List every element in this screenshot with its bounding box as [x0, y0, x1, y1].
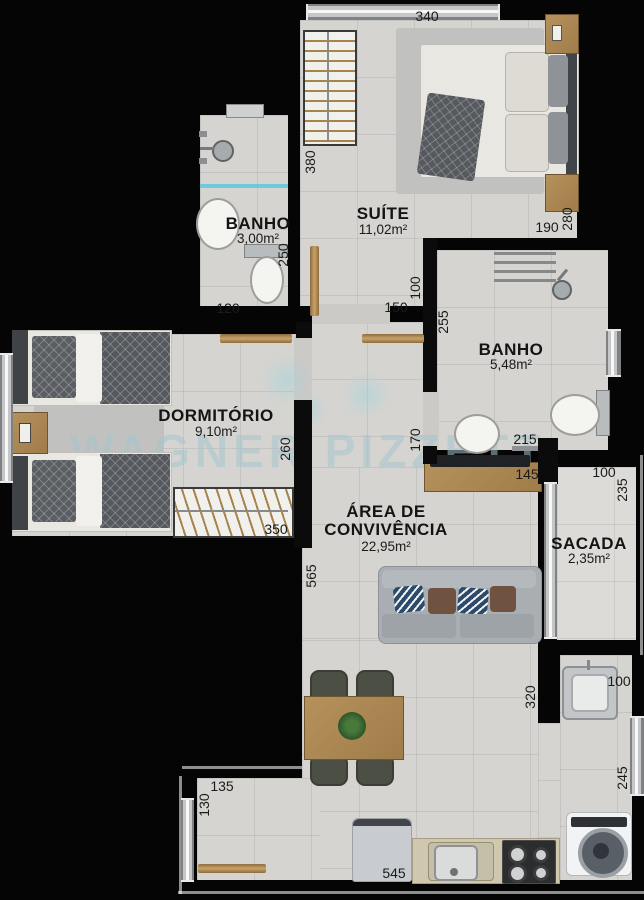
sofa-seat: [460, 614, 534, 638]
dim-banho-social-bottom: 215: [503, 431, 547, 447]
stove-cooktop: [502, 840, 556, 884]
dim-kitchen-step-left: 130: [196, 783, 212, 827]
toilet-icon: [550, 394, 600, 436]
room-area-convivencia: 22,95m²: [296, 539, 476, 554]
outline-bottom: [178, 891, 644, 894]
faucet-icon: [450, 868, 458, 876]
wardrobe-rail: [327, 32, 329, 140]
dim-hall-width: 100: [407, 266, 423, 310]
banho-social-door-leaf: [362, 334, 424, 343]
burner-icon: [508, 864, 527, 883]
dim-suite-left: 380: [302, 140, 318, 184]
nightstand: [10, 412, 48, 454]
shower-head-icon: [552, 280, 572, 300]
suite-throw-blanket: [417, 92, 486, 181]
dim-dormitorio-wardrobe: 350: [254, 521, 298, 537]
bed-headboard: [12, 456, 28, 530]
dim-living-left: 565: [303, 554, 319, 598]
outline-step: [182, 766, 302, 769]
dim-banho-social-left: 255: [435, 300, 451, 344]
wall: [296, 322, 312, 338]
banho-suite-door: [226, 104, 264, 118]
suite-pillow-gray: [548, 112, 568, 164]
dim-suite-right: 280: [559, 197, 575, 241]
dim-sideboard: 145: [505, 466, 549, 482]
floor-plan: WAGNER PIZZETTI: [0, 0, 644, 900]
suite-door-leaf: [310, 246, 319, 316]
bed-sheet: [76, 334, 102, 402]
dim-suite-window: 340: [405, 8, 449, 24]
shower-arm: [200, 147, 214, 150]
dim-kitchen-window: 245: [614, 756, 630, 800]
nightstand: [545, 14, 579, 54]
kitchen-left-window: [181, 798, 194, 882]
bed-pillow: [32, 336, 76, 398]
burner-icon: [533, 865, 549, 881]
room-area-banho-social: 5,48m²: [421, 357, 601, 372]
laundry-faucet: [587, 660, 590, 670]
bed-pillow: [32, 460, 76, 522]
dim-laundry-top: 100: [597, 673, 641, 689]
dim-banho-suite-width: 120: [206, 300, 250, 316]
suite-wardrobe: [303, 30, 357, 146]
banho-social-window: [606, 329, 621, 377]
sofa-pillow-chevron: [393, 585, 426, 614]
room-label-convivencia-2: CONVIVÊNCIA: [296, 520, 476, 540]
burner-icon: [533, 847, 549, 863]
lamp: [19, 423, 31, 443]
dormitorio-window: [0, 353, 13, 483]
sofa-pillow-brown: [428, 588, 456, 614]
kitchen-sink-icon: [434, 845, 478, 881]
shower-head-icon: [212, 140, 234, 162]
washing-machine: [566, 812, 632, 876]
dormitorio-door-leaf: [220, 334, 292, 343]
suite-window: [306, 4, 500, 20]
suite-pillow-gray: [548, 55, 568, 107]
sofa-seat: [382, 614, 456, 638]
dim-banho-suite-height: 250: [275, 233, 291, 277]
room-area-sacada: 2,35m²: [499, 551, 644, 566]
bed-blanket: [100, 454, 170, 528]
lamp: [552, 25, 562, 41]
dim-laundry-wall: 320: [522, 675, 538, 719]
bed-blanket: [100, 332, 170, 404]
sofa-pillow-brown: [490, 586, 516, 612]
watermark-blob: [340, 372, 392, 418]
kitchen-window: [630, 716, 644, 796]
dim-kitchen-bottom: 545: [372, 865, 416, 881]
room-label-suite: SUÍTE: [293, 204, 473, 224]
entry-door-leaf: [198, 864, 266, 873]
suite-pillow: [505, 52, 549, 112]
suite-pillow: [505, 114, 549, 172]
dim-banho-social-door: 170: [407, 418, 423, 462]
washer-panel: [571, 817, 627, 827]
shower-glass: [200, 184, 288, 188]
dim-dormitorio-right: 260: [277, 427, 293, 471]
sofa-pillow-chevron: [457, 587, 489, 616]
room-label-convivencia-1: ÁREA DE: [296, 502, 476, 522]
washer-drum-inner: [593, 843, 609, 859]
fridge-top: [353, 819, 411, 826]
towel-rack-icon: [494, 252, 556, 286]
sink-icon: [454, 414, 500, 454]
shower-knob: [199, 131, 207, 137]
room-area-suite: 11,02m²: [293, 222, 473, 237]
shower-knob: [199, 158, 207, 164]
wardrobe-rail: [175, 510, 288, 512]
dim-sacada-right: 235: [614, 468, 630, 512]
wall: [423, 446, 437, 464]
bed-sheet: [76, 456, 102, 526]
room-label-dormitorio: DORMITÓRIO: [126, 406, 306, 426]
bed-headboard: [12, 330, 28, 404]
plant-icon: [338, 712, 366, 740]
burner-icon: [508, 845, 527, 864]
